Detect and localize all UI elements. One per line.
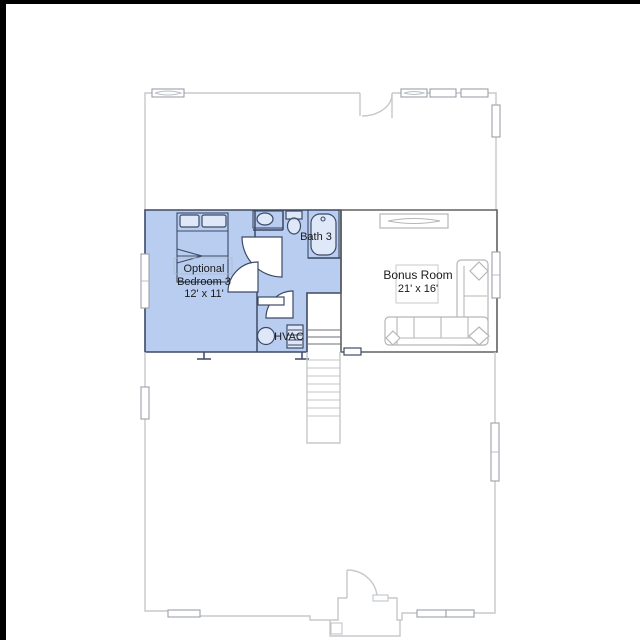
media-console bbox=[380, 214, 448, 228]
window bbox=[168, 610, 200, 617]
window bbox=[430, 89, 456, 97]
pillow bbox=[202, 215, 226, 227]
hvac-label: HVAC bbox=[274, 331, 304, 343]
pillow bbox=[180, 215, 199, 227]
window bbox=[461, 89, 488, 97]
entry-door-arc bbox=[347, 570, 377, 598]
floor-plan-page: Optional Bedroom 3 12' x 11' Bath 3 Bonu… bbox=[0, 0, 640, 640]
porch-post bbox=[331, 623, 342, 634]
window bbox=[492, 105, 500, 137]
bedroom-label-line1: Optional bbox=[184, 263, 225, 275]
bedroom-label-line2: Bedroom 3 bbox=[177, 276, 231, 288]
stairs bbox=[307, 330, 341, 443]
window bbox=[417, 610, 446, 617]
floor-plan: Optional Bedroom 3 12' x 11' Bath 3 Bonu… bbox=[0, 0, 640, 640]
bath-label: Bath 3 bbox=[300, 231, 332, 243]
window-lens bbox=[155, 91, 181, 95]
wall-markers bbox=[197, 352, 309, 359]
doorway-threshold bbox=[373, 595, 388, 601]
closet-shelf bbox=[258, 297, 284, 305]
bonus-room-dimensions: 21' x 16' bbox=[398, 283, 438, 295]
bedroom-dimensions: 12' x 11' bbox=[184, 288, 223, 300]
window bbox=[446, 610, 474, 617]
upper-level-walls bbox=[145, 89, 500, 210]
attic-door-arc bbox=[362, 94, 392, 116]
bonus-room-label: Bonus Room bbox=[383, 268, 452, 282]
window bbox=[141, 387, 149, 419]
water-heater-circle bbox=[258, 328, 275, 345]
window-lens bbox=[404, 92, 424, 95]
doorway-threshold bbox=[344, 348, 361, 355]
